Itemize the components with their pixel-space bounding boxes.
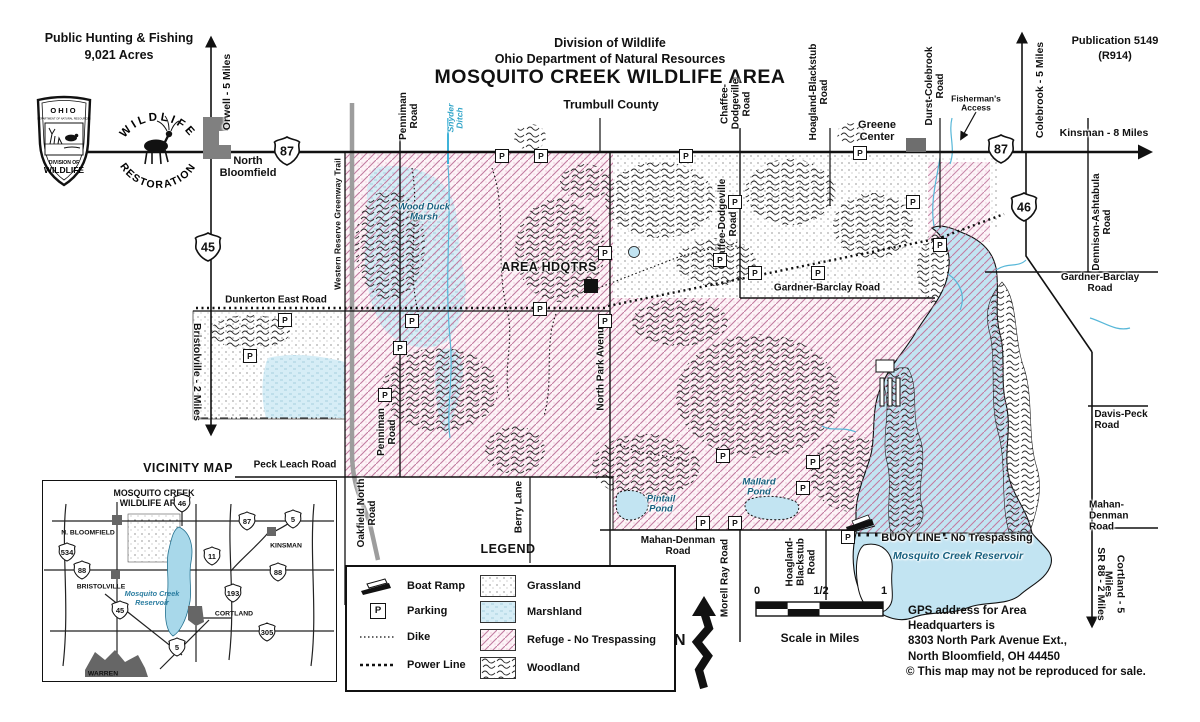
dike-icon bbox=[357, 633, 399, 641]
vicinity-route-shield-305: 305 bbox=[258, 622, 277, 642]
route-number: 88 bbox=[78, 566, 86, 575]
parking-icon: P bbox=[933, 238, 947, 252]
route-number: 5 bbox=[175, 643, 179, 652]
department-line: Ohio Department of Natural Resources bbox=[400, 52, 820, 66]
route-shield-46: 46 bbox=[1009, 192, 1039, 223]
legend-row-refuge: Refuge - No Trespassing bbox=[477, 629, 656, 651]
parking-icon: P bbox=[357, 603, 399, 619]
legend-row-boat-ramp: Boat Ramp bbox=[357, 577, 465, 595]
wildlife-restoration-logo: WILDLIFE RESTORATION bbox=[117, 111, 198, 191]
legend-label: Grassland bbox=[527, 580, 581, 592]
route-number: 46 bbox=[178, 499, 186, 508]
route-number: 5 bbox=[291, 515, 295, 524]
legend-row-power-line: Power Line bbox=[357, 659, 466, 671]
route-shield-87: 87 bbox=[272, 136, 302, 167]
parking-icon: P bbox=[728, 195, 742, 209]
legend-row-woodland: Woodland bbox=[477, 657, 580, 679]
parking-icon: P bbox=[495, 149, 509, 163]
parking-icon: P bbox=[806, 455, 820, 469]
parking-icon: P bbox=[243, 349, 257, 363]
legend-label: Marshland bbox=[527, 606, 582, 618]
route-number: 87 bbox=[280, 144, 294, 158]
route-number: 87 bbox=[243, 517, 251, 526]
vicinity-town-label: BRISTOLVILLE bbox=[77, 584, 125, 591]
vicinity-map-title: VICINITY MAP bbox=[108, 461, 268, 475]
legend-label: Parking bbox=[407, 605, 447, 617]
boat-ramp-icon bbox=[357, 577, 399, 595]
parking-icon: P bbox=[533, 302, 547, 316]
legend-title: LEGEND bbox=[428, 542, 588, 556]
legend-row-marshland: Marshland bbox=[477, 601, 582, 623]
parking-icon: P bbox=[696, 516, 710, 530]
parking-icon: P bbox=[378, 388, 392, 402]
vicinity-route-shield-11: 11 bbox=[203, 546, 222, 566]
parking-icon: P bbox=[796, 481, 810, 495]
vicinity-route-shield-534: 534 bbox=[58, 542, 77, 562]
map-page: Public Hunting & Fishing 9,021 Acres Div… bbox=[0, 0, 1200, 722]
scale-tick-1: 1 bbox=[881, 585, 887, 597]
legend-row-parking: P Parking bbox=[357, 603, 447, 619]
vicinity-route-shield-5: 5 bbox=[284, 509, 303, 529]
parking-icon: P bbox=[841, 530, 855, 544]
division-line: Division of Wildlife bbox=[400, 36, 820, 50]
north-arrow: N bbox=[684, 596, 724, 691]
parking-icon: P bbox=[853, 146, 867, 160]
route-number: 46 bbox=[1017, 200, 1031, 214]
parking-icon: P bbox=[811, 266, 825, 280]
route-number: 88 bbox=[274, 568, 282, 577]
vicinity-route-shield-88: 88 bbox=[73, 560, 92, 580]
legend-label: Refuge - No Trespassing bbox=[527, 634, 656, 646]
parking-icon: P bbox=[748, 266, 762, 280]
publication-number: Publication 5149 (R914) bbox=[1050, 34, 1180, 64]
parking-icon: P bbox=[598, 246, 612, 260]
legend-row-dike: Dike bbox=[357, 631, 430, 643]
svg-text:DEPARTMENT OF NATURAL RESOURCE: DEPARTMENT OF NATURAL RESOURCES bbox=[37, 117, 91, 121]
vicinity-route-shield-45: 45 bbox=[111, 600, 130, 620]
svg-text:WILDLIFE: WILDLIFE bbox=[44, 165, 84, 175]
svg-text:OHIO: OHIO bbox=[50, 106, 77, 115]
route-number: 305 bbox=[261, 628, 274, 637]
route-number: 45 bbox=[201, 240, 215, 254]
gps-address: GPS address for Area Headquarters is 830… bbox=[908, 604, 1067, 665]
svg-text:RESTORATION: RESTORATION bbox=[117, 161, 198, 191]
legend-label: Power Line bbox=[407, 659, 466, 671]
agency-logos: OHIO DEPARTMENT OF NATURAL RESOURCES DIV… bbox=[28, 92, 208, 207]
copyright-note: © This map may not be reproduced for sal… bbox=[906, 666, 1146, 678]
scale-bar bbox=[755, 601, 884, 623]
page-title: MOSQUITO CREEK WILDLIFE AREA bbox=[350, 66, 870, 89]
parking-icon: P bbox=[278, 313, 292, 327]
vicinity-route-shield-88: 88 bbox=[269, 562, 288, 582]
legend-row-grassland: Grassland bbox=[477, 575, 581, 597]
scale-caption: Scale in Miles bbox=[760, 631, 880, 645]
legend-box: Boat Ramp P Parking Dike Power Line Gras… bbox=[345, 565, 676, 692]
vicinity-town-label: N. BLOOMFIELD bbox=[61, 530, 115, 537]
route-number: 11 bbox=[208, 552, 216, 561]
route-number: 193 bbox=[227, 589, 240, 598]
route-number: 87 bbox=[994, 142, 1008, 156]
scale-tick-0: 0 bbox=[754, 585, 760, 597]
svg-text:WILDLIFE: WILDLIFE bbox=[118, 111, 199, 140]
power-line-icon bbox=[357, 661, 399, 669]
legend-label: Boat Ramp bbox=[407, 580, 465, 592]
public-hunting-acres: Public Hunting & Fishing 9,021 Acres bbox=[34, 30, 204, 64]
vicinity-town-label: CORTLAND bbox=[215, 611, 253, 618]
parking-icon: P bbox=[534, 149, 548, 163]
vicinity-area-label: MOSQUITO CREEK WILDLIFE AREA bbox=[94, 488, 214, 508]
odnr-shield-logo: OHIO DEPARTMENT OF NATURAL RESOURCES DIV… bbox=[37, 97, 91, 185]
parking-icon: P bbox=[713, 253, 727, 267]
parking-icon: P bbox=[679, 149, 693, 163]
vicinity-route-shield-193: 193 bbox=[224, 583, 243, 603]
parking-icon: P bbox=[598, 314, 612, 328]
route-shield-45: 45 bbox=[193, 232, 223, 263]
area-hq-marker bbox=[584, 279, 598, 293]
parking-icon: P bbox=[393, 341, 407, 355]
north-letter: N bbox=[674, 632, 686, 650]
vicinity-route-shield-5: 5 bbox=[168, 637, 187, 657]
legend-label: Dike bbox=[407, 631, 430, 643]
route-shield-87: 87 bbox=[986, 134, 1016, 165]
scale-tick-half: 1/2 bbox=[813, 585, 828, 597]
parking-icon: P bbox=[405, 314, 419, 328]
vicinity-town-label: KINSMAN bbox=[270, 543, 302, 550]
route-number: 534 bbox=[61, 548, 74, 557]
parking-icon: P bbox=[716, 449, 730, 463]
legend-label: Woodland bbox=[527, 662, 580, 674]
parking-icon: P bbox=[728, 516, 742, 530]
route-number: 45 bbox=[116, 606, 124, 615]
vicinity-route-shield-46: 46 bbox=[173, 493, 192, 513]
vicinity-town-label: WARREN bbox=[88, 671, 118, 678]
vicinity-route-shield-87: 87 bbox=[238, 511, 257, 531]
parking-icon: P bbox=[906, 195, 920, 209]
greene-center-town-shape bbox=[906, 138, 926, 152]
